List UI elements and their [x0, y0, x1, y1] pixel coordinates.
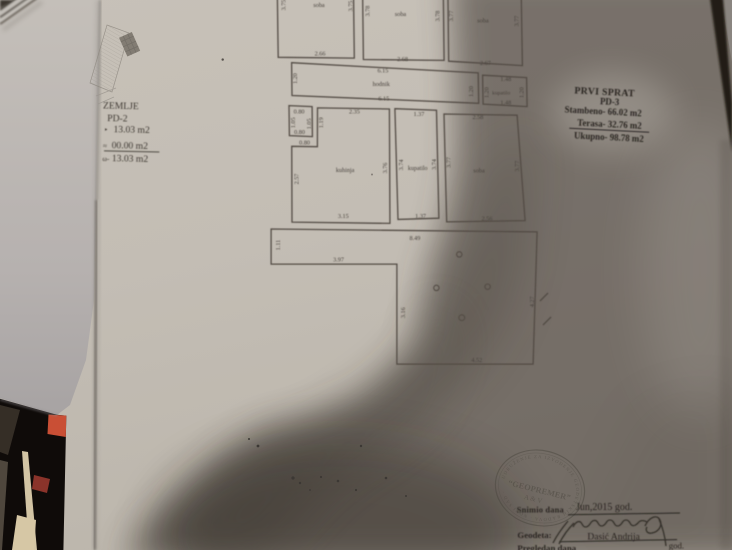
svg-text:6.15: 6.15: [378, 96, 389, 103]
svg-text:2.66: 2.66: [315, 51, 326, 58]
svg-text:hodnik: hodnik: [373, 81, 391, 88]
svg-text:3.77: 3.77: [446, 157, 453, 168]
svg-text:3.78: 3.78: [365, 6, 372, 17]
svg-text:1.20: 1.20: [468, 86, 475, 97]
svg-text:0.80: 0.80: [294, 129, 305, 136]
svg-text:2.67: 2.67: [480, 60, 491, 67]
svg-text:4.27: 4.27: [529, 296, 536, 307]
svg-text:1.48: 1.48: [500, 76, 511, 83]
svg-text:Jun,2015 god.: Jun,2015 god.: [576, 502, 632, 513]
svg-text:8.49: 8.49: [409, 235, 420, 242]
svg-text:3.75: 3.75: [348, 1, 355, 12]
svg-text:1.20: 1.20: [483, 87, 490, 98]
svg-text:00.00 m2: 00.00 m2: [112, 140, 149, 152]
svg-text:kupatilo: kupatilo: [408, 166, 428, 172]
svg-text:1.37: 1.37: [415, 213, 426, 220]
svg-text:3.77: 3.77: [514, 161, 521, 172]
svg-text:1.37: 1.37: [413, 111, 424, 118]
svg-text:3.77: 3.77: [513, 16, 520, 27]
svg-text:3.15: 3.15: [338, 213, 349, 220]
svg-text:3.74: 3.74: [398, 159, 405, 170]
svg-text:1.20: 1.20: [518, 87, 525, 98]
svg-text:3.97: 3.97: [333, 257, 344, 264]
svg-text:Geodeta:: Geodeta:: [517, 530, 551, 540]
svg-text:13.03 m2: 13.03 m2: [112, 153, 149, 165]
svg-text:PD-2: PD-2: [107, 113, 128, 124]
svg-text:soba: soba: [395, 11, 407, 18]
svg-text:2.56: 2.56: [482, 216, 493, 223]
svg-text:3.74: 3.74: [431, 159, 438, 170]
svg-text:2.35: 2.35: [349, 109, 360, 116]
svg-text:≈: ≈: [103, 142, 107, 150]
svg-text:1.05: 1.05: [306, 118, 313, 129]
svg-text:0.80: 0.80: [294, 109, 305, 116]
svg-text:13.03 m2: 13.03 m2: [113, 124, 150, 136]
svg-text:kuhinja: kuhinja: [336, 167, 355, 174]
svg-text:6.15: 6.15: [377, 68, 388, 75]
svg-text:soba: soba: [477, 18, 489, 25]
svg-text:‣: ‣: [104, 126, 108, 134]
svg-text:1.19: 1.19: [318, 117, 325, 128]
svg-text:1.48: 1.48: [500, 100, 511, 107]
svg-text:Pregledan dana: Pregledan dana: [517, 543, 576, 550]
svg-text:3.77: 3.77: [448, 11, 455, 22]
svg-text:1.11: 1.11: [275, 240, 282, 251]
svg-text:Snimio dana: Snimio dana: [517, 506, 565, 515]
svg-text:1.05: 1.05: [290, 117, 297, 128]
svg-text:ZEMLJE: ZEMLJE: [103, 101, 139, 113]
svg-text:4.52: 4.52: [471, 357, 482, 364]
svg-text:2.68: 2.68: [397, 56, 408, 63]
svg-text:3.78: 3.78: [435, 11, 442, 22]
svg-text:3.16: 3.16: [400, 307, 407, 318]
svg-text:2.57: 2.57: [294, 174, 301, 185]
svg-text:2.58: 2.58: [472, 114, 483, 121]
svg-text:1.20: 1.20: [292, 73, 299, 84]
svg-text:3.75: 3.75: [281, 0, 288, 10]
svg-text:kupatilo: kupatilo: [492, 91, 510, 97]
svg-text:ω-: ω-: [102, 155, 110, 163]
svg-text:soba: soba: [473, 168, 485, 175]
svg-text:god.: god.: [669, 541, 684, 550]
svg-text:0.80: 0.80: [299, 140, 310, 147]
svg-text:3.76: 3.76: [382, 163, 389, 174]
svg-text:soba: soba: [313, 2, 325, 9]
